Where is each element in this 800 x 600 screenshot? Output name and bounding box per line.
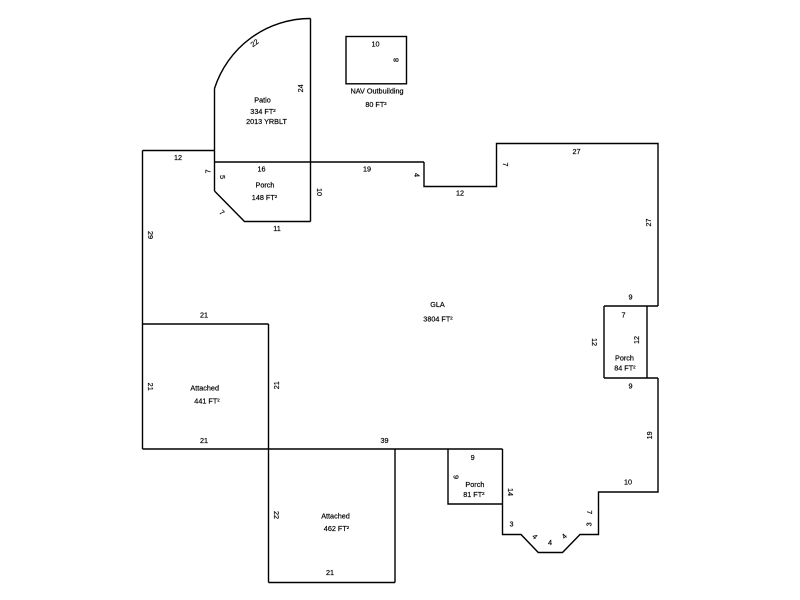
svg-text:81 FT²: 81 FT² <box>463 490 485 499</box>
svg-text:27: 27 <box>644 218 653 226</box>
svg-text:5: 5 <box>218 175 227 179</box>
svg-text:14: 14 <box>506 488 515 496</box>
svg-text:12: 12 <box>456 189 464 198</box>
svg-text:12: 12 <box>590 338 599 346</box>
svg-text:10: 10 <box>371 39 379 48</box>
svg-text:4: 4 <box>548 538 552 547</box>
svg-text:19: 19 <box>363 165 371 174</box>
svg-text:Attached: Attached <box>321 512 350 521</box>
svg-text:4: 4 <box>559 532 568 541</box>
svg-text:19: 19 <box>645 431 654 439</box>
svg-text:11: 11 <box>273 224 281 233</box>
svg-text:7: 7 <box>501 162 510 166</box>
svg-text:22: 22 <box>272 511 281 519</box>
svg-text:3804 FT²: 3804 FT² <box>423 315 453 324</box>
svg-text:21: 21 <box>326 568 334 577</box>
svg-text:21: 21 <box>272 381 281 389</box>
svg-text:9: 9 <box>452 475 461 479</box>
svg-text:24: 24 <box>296 84 305 92</box>
svg-text:462 FT²: 462 FT² <box>324 524 350 533</box>
svg-text:7: 7 <box>203 169 212 173</box>
svg-text:334 FT²: 334 FT² <box>250 107 276 116</box>
svg-text:GLA: GLA <box>430 300 445 309</box>
svg-text:7: 7 <box>217 208 226 217</box>
svg-text:8: 8 <box>391 58 400 62</box>
svg-text:2013 YRBLT: 2013 YRBLT <box>246 117 287 126</box>
svg-text:4: 4 <box>412 173 421 177</box>
svg-text:7: 7 <box>585 510 594 514</box>
svg-text:39: 39 <box>380 436 388 445</box>
svg-text:4: 4 <box>530 532 539 541</box>
svg-text:7: 7 <box>621 311 625 320</box>
svg-text:27: 27 <box>572 147 580 156</box>
svg-text:148 FT²: 148 FT² <box>252 193 278 202</box>
svg-text:10: 10 <box>624 478 632 487</box>
svg-text:84 FT²: 84 FT² <box>614 364 636 373</box>
svg-text:29: 29 <box>146 231 155 239</box>
svg-text:9: 9 <box>628 293 632 302</box>
svg-text:Patio: Patio <box>254 96 271 105</box>
svg-text:12: 12 <box>174 153 182 162</box>
svg-text:3: 3 <box>585 522 594 526</box>
svg-text:NAV Outbuilding: NAV Outbuilding <box>350 87 403 96</box>
svg-text:Porch: Porch <box>256 181 275 190</box>
svg-text:21: 21 <box>200 436 208 445</box>
svg-text:Attached: Attached <box>190 384 219 393</box>
svg-text:9: 9 <box>628 382 632 391</box>
svg-text:441 FT²: 441 FT² <box>194 396 220 405</box>
svg-text:21: 21 <box>146 383 155 391</box>
svg-text:3: 3 <box>509 520 513 529</box>
svg-text:Porch: Porch <box>465 480 484 489</box>
svg-text:80 FT²: 80 FT² <box>365 100 387 109</box>
svg-text:9: 9 <box>471 453 475 462</box>
svg-text:12: 12 <box>632 336 641 344</box>
svg-text:10: 10 <box>315 188 324 196</box>
svg-text:21: 21 <box>200 311 208 320</box>
svg-text:16: 16 <box>257 165 265 174</box>
svg-text:Porch: Porch <box>615 354 634 363</box>
